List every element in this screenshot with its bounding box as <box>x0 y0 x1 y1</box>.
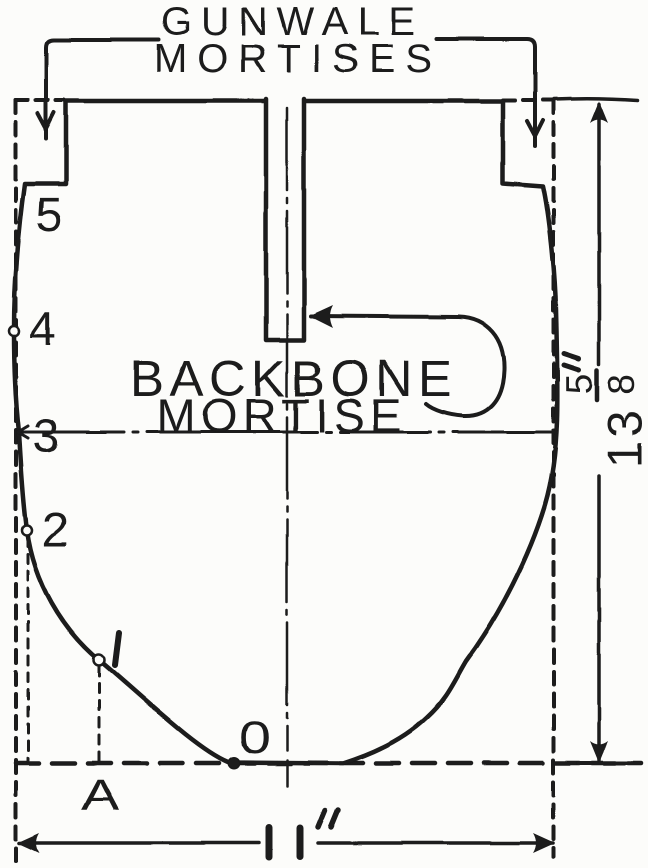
svg-text:8: 8 <box>601 374 642 395</box>
svg-text:13: 13 <box>599 407 648 468</box>
svg-text:5: 5 <box>36 189 63 242</box>
svg-text:MORTISES: MORTISES <box>154 37 432 81</box>
svg-text:A: A <box>81 770 119 819</box>
svg-text:0: 0 <box>239 712 271 762</box>
svg-text:5: 5 <box>559 374 600 395</box>
svg-text:4: 4 <box>29 303 56 356</box>
svg-text:3: 3 <box>33 410 60 463</box>
svg-text:2: 2 <box>42 504 69 557</box>
